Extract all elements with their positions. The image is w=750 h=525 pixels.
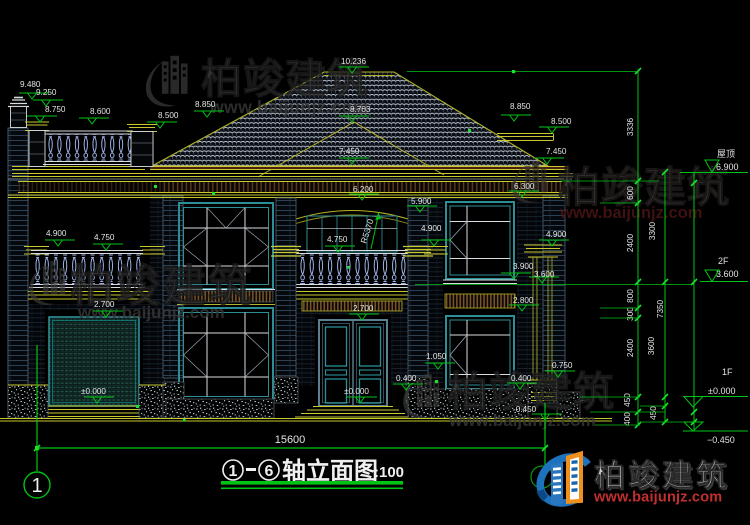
svg-text:1: 1 xyxy=(229,463,238,480)
svg-text:±0.000: ±0.000 xyxy=(344,387,369,396)
svg-text:7.450: 7.450 xyxy=(339,147,360,156)
svg-text:0.400: 0.400 xyxy=(396,374,417,383)
svg-text:7350: 7350 xyxy=(656,299,665,318)
svg-text:2.800: 2.800 xyxy=(513,296,534,305)
svg-text:2F: 2F xyxy=(718,256,729,266)
svg-text:3300: 3300 xyxy=(648,221,657,240)
svg-text:450: 450 xyxy=(649,406,658,420)
svg-text:450: 450 xyxy=(623,393,632,407)
svg-text:8.600: 8.600 xyxy=(90,107,111,116)
svg-text:7.450: 7.450 xyxy=(546,147,567,156)
svg-text:8.850: 8.850 xyxy=(195,100,216,109)
svg-text:±0.000: ±0.000 xyxy=(708,386,735,396)
svg-text:2400: 2400 xyxy=(626,338,635,357)
svg-text:400: 400 xyxy=(623,412,632,426)
svg-text:600: 600 xyxy=(626,186,635,200)
svg-text:300: 300 xyxy=(626,307,635,321)
svg-text:1: 1 xyxy=(31,475,42,497)
svg-text:3.600: 3.600 xyxy=(534,270,555,279)
svg-text:1.050: 1.050 xyxy=(426,352,447,361)
svg-text:柏竣建筑: 柏竣建筑 xyxy=(594,458,730,493)
svg-text:0.400: 0.400 xyxy=(511,374,532,383)
svg-text:10.236: 10.236 xyxy=(341,57,366,66)
svg-text:轴立面图: 轴立面图 xyxy=(282,457,378,485)
svg-text:−0.450: −0.450 xyxy=(707,435,735,445)
svg-text:8.500: 8.500 xyxy=(158,111,179,120)
svg-text:8.850: 8.850 xyxy=(510,102,531,111)
svg-text:6: 6 xyxy=(265,463,274,480)
svg-text:3336: 3336 xyxy=(626,117,635,136)
svg-text:4.900: 4.900 xyxy=(546,230,567,239)
svg-text:5.900: 5.900 xyxy=(411,197,432,206)
svg-text:6.200: 6.200 xyxy=(353,185,374,194)
svg-text:3600: 3600 xyxy=(647,336,656,355)
svg-text:www.baijunjz.com: www.baijunjz.com xyxy=(209,97,369,117)
svg-text:3.900: 3.900 xyxy=(513,262,534,271)
svg-text:4.900: 4.900 xyxy=(421,224,442,233)
svg-text:9.250: 9.250 xyxy=(36,88,57,97)
svg-text:2.700: 2.700 xyxy=(353,304,374,313)
svg-text:8.703: 8.703 xyxy=(350,105,371,114)
svg-text:±0.000: ±0.000 xyxy=(81,387,106,396)
svg-text:www.baijunjz.com: www.baijunjz.com xyxy=(559,204,702,222)
svg-text:2.700: 2.700 xyxy=(94,300,115,309)
svg-text:屋顶: 屋顶 xyxy=(717,149,735,159)
svg-text:-0.450: -0.450 xyxy=(513,405,537,414)
svg-text:8.750: 8.750 xyxy=(45,105,66,114)
svg-text:www.baijunjz.com: www.baijunjz.com xyxy=(593,490,722,506)
svg-text:0.750: 0.750 xyxy=(552,361,573,370)
svg-text:6.900: 6.900 xyxy=(716,162,739,172)
svg-text:8.500: 8.500 xyxy=(551,117,572,126)
svg-text:4.750: 4.750 xyxy=(94,233,115,242)
svg-text:2400: 2400 xyxy=(626,233,635,252)
svg-text:1F: 1F xyxy=(722,367,733,377)
svg-text:4.750: 4.750 xyxy=(327,235,348,244)
svg-text:3.600: 3.600 xyxy=(716,269,739,279)
svg-text::100: :100 xyxy=(374,464,404,481)
svg-text:800: 800 xyxy=(626,289,635,303)
svg-text:6.300: 6.300 xyxy=(514,182,535,191)
svg-text:4.900: 4.900 xyxy=(46,229,67,238)
svg-text:15600: 15600 xyxy=(275,434,306,446)
